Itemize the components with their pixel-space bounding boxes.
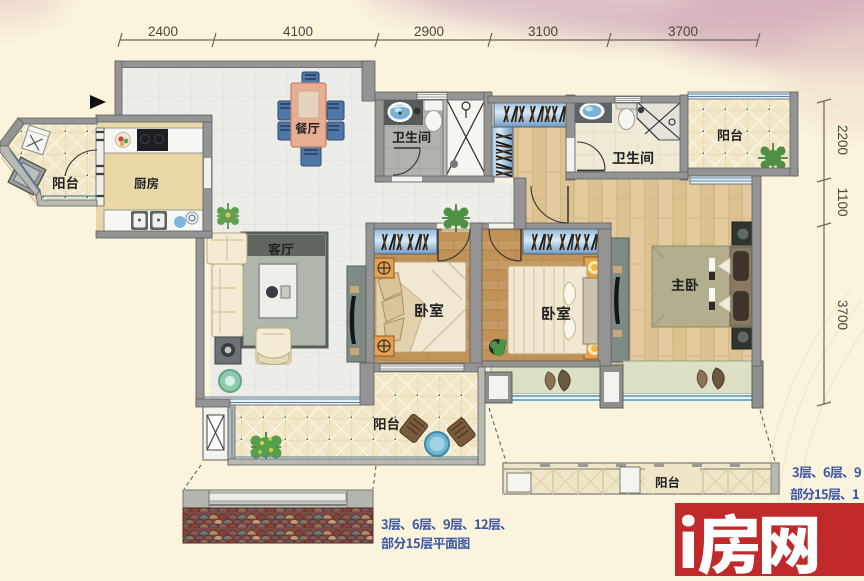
svg-text:2400: 2400 [148,24,178,39]
svg-text:4100: 4100 [283,24,313,39]
svg-text:3700: 3700 [835,300,850,330]
svg-text:2200: 2200 [835,125,850,155]
svg-text:1100: 1100 [835,187,850,216]
svg-text:3700: 3700 [668,24,698,39]
svg-text:3100: 3100 [528,24,558,39]
svg-text:2900: 2900 [414,24,444,39]
